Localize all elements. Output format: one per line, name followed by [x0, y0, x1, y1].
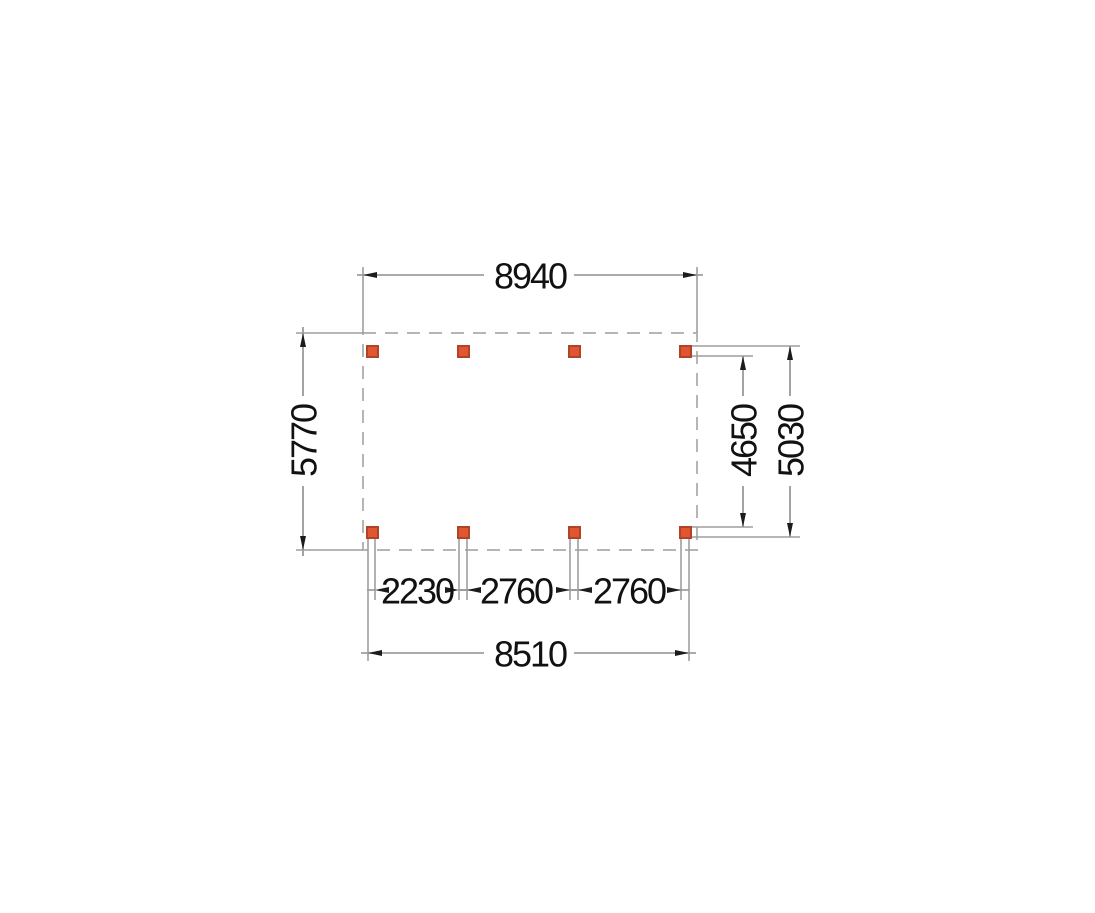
dim-bay-3-label: 2760	[593, 571, 666, 612]
post-bottom-1	[367, 527, 378, 538]
plan-outline-dashed	[363, 333, 697, 550]
dim-bay-2-label: 2760	[480, 571, 553, 612]
arrow-bay2-right	[556, 587, 570, 593]
arrow-bottom-span-right	[675, 650, 689, 656]
post-bottom-3	[569, 527, 580, 538]
post-markers	[367, 346, 691, 538]
arrow-bottom-span-left	[368, 650, 382, 656]
post-top-4	[680, 346, 691, 357]
post-bottom-4	[680, 527, 691, 538]
arrow-right-inner-up	[740, 356, 746, 370]
arrow-left-depth-down	[300, 536, 306, 550]
dim-top-width-label: 8940	[494, 256, 567, 297]
dim-right-outer-label: 5030	[771, 404, 812, 477]
arrow-right-inner-down	[740, 513, 746, 527]
post-top-1	[367, 346, 378, 357]
arrow-bay3-left	[578, 587, 592, 593]
arrow-top-width-left	[363, 272, 377, 278]
dim-bottom-span-label: 8510	[494, 634, 567, 675]
arrow-bay3-right	[667, 587, 681, 593]
post-top-3	[569, 346, 580, 357]
arrow-right-outer-down	[787, 523, 793, 537]
dim-left-depth-label: 5770	[284, 404, 325, 477]
post-bottom-2	[458, 527, 469, 538]
arrow-left-depth-up	[300, 333, 306, 347]
dim-bay-1-label: 2230	[381, 571, 454, 612]
plan-drawing-page: 8940 5770 4650 5030 2230 2760 2760 8510	[0, 0, 1095, 913]
dim-right-inner-label: 4650	[724, 404, 765, 477]
foundation-plan-canvas: 8940 5770 4650 5030 2230 2760 2760 8510	[0, 0, 1095, 913]
arrow-right-outer-up	[787, 346, 793, 360]
post-top-2	[458, 346, 469, 357]
arrow-top-width-right	[683, 272, 697, 278]
